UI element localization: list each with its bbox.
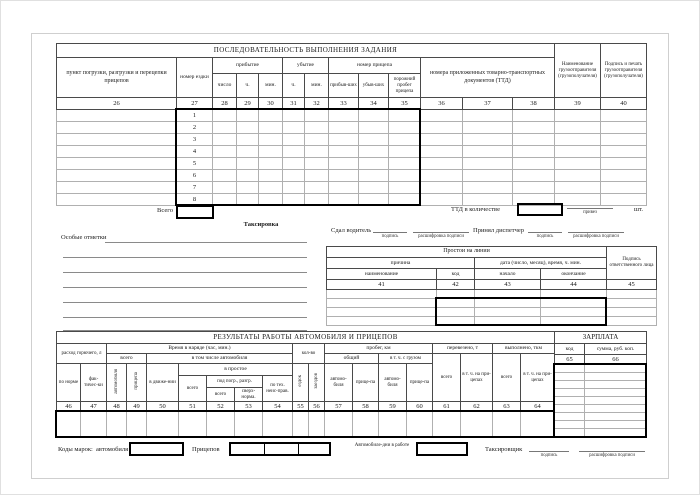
entry-cell (421, 182, 463, 194)
entry-cell (359, 110, 389, 122)
entry-cell (283, 134, 305, 146)
entry-cell (305, 110, 329, 122)
column-number: 50 (147, 402, 179, 412)
entry-cell (329, 158, 359, 170)
entry-cell (555, 405, 585, 413)
entry-cell (213, 182, 237, 194)
entry-cell (327, 317, 437, 326)
entry-cell (421, 146, 463, 158)
entry-cell (379, 412, 407, 438)
downtime-rows-body (327, 290, 657, 326)
entry-cell (213, 146, 237, 158)
entry-cell (585, 381, 647, 389)
entry-cell (389, 122, 421, 134)
entry-cell (555, 170, 601, 182)
column-number: 37 (463, 98, 513, 110)
entry-cell (305, 122, 329, 134)
trailers-label: Прицепов (192, 446, 220, 453)
column-number: 44 (541, 280, 607, 290)
entry-row (555, 381, 647, 389)
entry-cell (463, 170, 513, 182)
rater-name-blank: расшифровка подписи (579, 444, 645, 458)
salary-title: ЗАРПЛАТА (555, 332, 647, 344)
column-number: 62 (461, 402, 493, 412)
entry-cell (389, 134, 421, 146)
column-number: 26 (57, 98, 177, 110)
entry-cell (305, 158, 329, 170)
entry-cell (329, 134, 359, 146)
column-numbers-row: 262728293031323334353637383940 (57, 98, 647, 110)
signature-caption: подпись (529, 453, 569, 458)
entry-cell (585, 373, 647, 381)
entry-cell (541, 308, 607, 317)
entry-cell (389, 170, 421, 182)
entry-cell (475, 299, 541, 308)
column-number: 60 (407, 402, 433, 412)
hdr-vehicle-vertical: автомобиля (107, 364, 127, 402)
column-number: 47 (81, 402, 107, 412)
entry-cell (213, 122, 237, 134)
entry-cell (389, 146, 421, 158)
hdr-carried-total: всего (433, 354, 461, 402)
entry-cell (259, 122, 283, 134)
entry-cell (213, 110, 237, 122)
notes-line (63, 302, 307, 303)
column-number: 61 (433, 402, 461, 412)
entry-cell (179, 412, 207, 438)
task-sequence-title: ПОСЛЕДОВАТЕЛЬНОСТЬ ВЫПОЛНЕНИЯ ЗАДАНИЯ (57, 44, 555, 58)
entry-cell (57, 134, 177, 146)
entry-cell (237, 134, 259, 146)
task-row: 3 (57, 134, 647, 146)
entry-cell (555, 110, 601, 122)
column-number: 34 (359, 98, 389, 110)
entry-cell (329, 146, 359, 158)
entry-cell (213, 170, 237, 182)
hdr-carried: перевезено, т (433, 344, 493, 354)
entry-cell (555, 158, 601, 170)
entry-cell (57, 146, 177, 158)
hdr-rides-vertical: ездок (293, 364, 309, 402)
entry-cell (475, 290, 541, 299)
hdr-loading-total: всего (207, 388, 235, 402)
hdr-time-total: всего (107, 354, 147, 364)
entry-row (327, 308, 657, 317)
entry-cell (329, 170, 359, 182)
entry-cell (463, 146, 513, 158)
entry-cell (541, 290, 607, 299)
hdr-done: выполнено, ткм (493, 344, 555, 354)
entry-cell (421, 158, 463, 170)
blank-line (579, 444, 645, 452)
entry-cell (293, 412, 309, 438)
column-number: 40 (601, 98, 647, 110)
blank-line (568, 225, 624, 233)
column-numbers-row: 4142434445 (327, 280, 657, 290)
entry-cell (147, 412, 179, 438)
column-number: 51 (179, 402, 207, 412)
entry-cell (555, 421, 585, 429)
entry-cell (57, 194, 177, 206)
column-number: 64 (521, 402, 555, 412)
entry-cell (329, 110, 359, 122)
entry-cell (585, 421, 647, 429)
signature-caption: подпись (373, 234, 407, 239)
entry-cell (237, 182, 259, 194)
entry-cell (353, 412, 379, 438)
entry-cell (259, 194, 283, 206)
entry-cell (389, 194, 421, 206)
entry-cell (359, 122, 389, 134)
entry-cell (237, 110, 259, 122)
hdr-visits-vertical: заездов (309, 364, 325, 402)
total-label: Всего (141, 207, 173, 214)
rides-vertical-text: ездок (298, 375, 303, 387)
visits-vertical-text: заездов (314, 373, 319, 389)
hdr-mileage-overall: общий (325, 354, 379, 364)
entry-cell (57, 158, 177, 170)
notes-line (63, 257, 307, 258)
entry-cell (57, 170, 177, 182)
entry-cell (305, 146, 329, 158)
entry-cell (259, 146, 283, 158)
column-number: 63 (493, 402, 521, 412)
entry-cell (237, 194, 259, 206)
task-sequence-table: ПОСЛЕДОВАТЕЛЬНОСТЬ ВЫПОЛНЕНИЯ ЗАДАНИЯ На… (56, 43, 647, 206)
column-number: 52 (207, 402, 235, 412)
column-number: 33 (329, 98, 359, 110)
entry-cell (585, 405, 647, 413)
driver-name-blank: расшифровка подписи (413, 225, 469, 239)
entry-cell (555, 413, 585, 421)
entry-cell (263, 412, 293, 438)
entry-cell (513, 182, 555, 194)
ride-number-cell: 1 (177, 110, 213, 122)
hdr-quantity: кол-во (293, 344, 325, 364)
entry-cell (585, 397, 647, 405)
column-number: 66 (585, 355, 647, 365)
entry-cell (421, 122, 463, 134)
hdr-under-loading: под погр., разгр. (207, 376, 263, 388)
hdr-fuel-fact: фак-тичес-ки (81, 364, 107, 402)
signature-decode-caption: расшифровка подписи (413, 234, 469, 239)
entry-cell (555, 146, 601, 158)
entry-cell (585, 389, 647, 397)
entry-cell (437, 308, 475, 317)
entry-cell (57, 412, 81, 438)
hdr-mileage: пробег, км (325, 344, 433, 354)
hdr-tech-fault: по тех. неис-прав. (263, 376, 293, 402)
title-row: РЕЗУЛЬТАТЫ РАБОТЫ АВТОМОБИЛЯ И ПРИЦЕПОВ (57, 332, 555, 344)
entry-cell (329, 122, 359, 134)
column-number: 56 (309, 402, 325, 412)
column-number: 49 (127, 402, 147, 412)
results-entry-body (57, 412, 555, 438)
entry-cell (407, 412, 433, 438)
task-row: 4 (57, 146, 647, 158)
entry-cell (493, 412, 521, 438)
hdr-idle-total: всего (179, 376, 207, 402)
entry-cell (327, 308, 437, 317)
entry-cell (359, 194, 389, 206)
entry-row (327, 290, 657, 299)
entry-cell (601, 134, 647, 146)
entry-cell (585, 365, 647, 373)
entry-cell (607, 317, 657, 326)
entry-row (57, 412, 555, 438)
entry-cell (57, 110, 177, 122)
brought-caption: привез (567, 210, 613, 215)
column-number: 30 (259, 98, 283, 110)
hdr-cargo-vehicle: автомо-биля (379, 364, 407, 402)
ride-number-cell: 5 (177, 158, 213, 170)
hdr-in-motion: в движе-нии (147, 364, 179, 402)
entry-cell (555, 122, 601, 134)
hdr-arrival-min: мин. (259, 74, 283, 98)
column-number: 32 (305, 98, 329, 110)
entry-cell (513, 170, 555, 182)
results-table: РЕЗУЛЬТАТЫ РАБОТЫ АВТОМОБИЛЯ И ПРИЦЕПОВ … (56, 331, 555, 438)
entry-cell (359, 170, 389, 182)
signature-decode-caption: расшифровка подписи (568, 234, 624, 239)
blank-line (373, 225, 407, 233)
entry-cell (541, 317, 607, 326)
entry-cell (389, 182, 421, 194)
entry-cell (555, 381, 585, 389)
entry-cell (513, 122, 555, 134)
entry-row (327, 317, 657, 326)
entry-cell (305, 194, 329, 206)
entry-cell (463, 122, 513, 134)
column-number: 42 (437, 280, 475, 290)
title-row: Простои на линии Подпись ответственного … (327, 247, 657, 258)
hdr-end: окончание (541, 269, 607, 280)
entry-cell (107, 412, 127, 438)
entry-cell (213, 194, 237, 206)
hdr-salary-code: код (555, 344, 585, 355)
hdr-mileage-trailer: прице-па (353, 364, 379, 402)
entry-cell (283, 170, 305, 182)
blank-line (528, 225, 562, 233)
salary-table: ЗАРПЛАТА код сумма, руб. коп. 65 66 (554, 331, 647, 437)
column-number: 41 (327, 280, 437, 290)
entry-cell (607, 299, 657, 308)
hdr-departure-min: мин. (305, 74, 329, 98)
column-number: 59 (379, 402, 407, 412)
entry-row (555, 421, 647, 429)
downtime-title: Простои на линии (327, 247, 607, 258)
column-number: 36 (421, 98, 463, 110)
waybill-back-page: ПОСЛЕДОВАТЕЛЬНОСТЬ ВЫПОЛНЕНИЯ ЗАДАНИЯ На… (0, 0, 700, 495)
taksirovka-label: Таксировка (226, 221, 296, 228)
task-row: 7 (57, 182, 647, 194)
rater-signature-blank: подпись (529, 444, 569, 458)
entry-cell (513, 194, 555, 206)
entry-cell (601, 158, 647, 170)
entry-cell (329, 182, 359, 194)
hdr-arrival-hour: ч. (237, 74, 259, 98)
entry-cell (359, 146, 389, 158)
column-number: 53 (235, 402, 263, 412)
entry-cell (329, 194, 359, 206)
entry-cell (237, 170, 259, 182)
entry-cell (555, 397, 585, 405)
entry-cell (555, 182, 601, 194)
hdr-cargo-trailer: прице-па (407, 364, 433, 402)
notes-line (63, 287, 307, 288)
entry-cell (463, 134, 513, 146)
rater-label: Таксировщик (485, 446, 522, 453)
entry-cell (437, 290, 475, 299)
entry-cell (325, 412, 353, 438)
entry-cell (463, 182, 513, 194)
column-number: 27 (177, 98, 213, 110)
codes-text: Коды марок: (58, 446, 93, 453)
entry-cell (283, 146, 305, 158)
column-number: 35 (389, 98, 421, 110)
column-number: 48 (107, 402, 127, 412)
entry-cell (555, 365, 585, 373)
entry-cell (127, 412, 147, 438)
entry-cell (305, 182, 329, 194)
entry-cell (463, 110, 513, 122)
notes-line (105, 242, 307, 243)
ride-number-cell: 3 (177, 134, 213, 146)
entry-cell (601, 110, 647, 122)
column-number: 45 (607, 280, 657, 290)
blank-line (567, 201, 613, 209)
entry-cell (237, 158, 259, 170)
hdr-date-time: дата (число, месяц), время, ч. мин. (475, 258, 607, 269)
entry-cell (555, 373, 585, 381)
entry-cell (475, 308, 541, 317)
task-rows-body: 12345678 (57, 110, 647, 206)
column-number: 38 (513, 98, 555, 110)
entry-cell (389, 110, 421, 122)
entry-row (327, 299, 657, 308)
entry-cell (437, 317, 475, 326)
entry-cell (283, 182, 305, 194)
entry-cell (309, 412, 325, 438)
hdr-trailer-arrived: прибыв-ших (329, 74, 359, 98)
entry-cell (521, 412, 555, 438)
trailer-vertical-text: прицепа (134, 372, 139, 390)
task-row: 6 (57, 170, 647, 182)
pcs-label: шт. (634, 206, 643, 213)
entry-cell (463, 194, 513, 206)
entry-cell (601, 122, 647, 134)
hdr-departure: убытие (283, 58, 329, 74)
entry-row (555, 373, 647, 381)
hdr-start: начало (475, 269, 541, 280)
task-row: 1 (57, 110, 647, 122)
hdr-mileage-vehicle: автомо-биля (325, 364, 353, 402)
entry-row (555, 429, 647, 437)
entry-row (555, 397, 647, 405)
entry-cell (421, 194, 463, 206)
entry-cell (327, 290, 437, 299)
entry-cell (259, 170, 283, 182)
title-row: ПОСЛЕДОВАТЕЛЬНОСТЬ ВЫПОЛНЕНИЯ ЗАДАНИЯ На… (57, 44, 647, 58)
signature-decode-caption: расшифровка подписи (579, 453, 645, 458)
hdr-salary-sum: сумма, руб. коп. (585, 344, 647, 355)
entry-cell (207, 412, 235, 438)
entry-cell (305, 134, 329, 146)
entry-cell (305, 170, 329, 182)
dispatcher-signature-blank: подпись (528, 225, 562, 239)
title-row: ЗАРПЛАТА (555, 332, 647, 344)
hdr-trailer-number: номер прицепа (329, 58, 421, 74)
entry-cell (327, 299, 437, 308)
hdr-done-on-trailers: в т. ч. на при-цепах (521, 354, 555, 402)
entry-cell (259, 134, 283, 146)
entry-cell (237, 122, 259, 134)
entry-cell (359, 134, 389, 146)
entry-cell (213, 134, 237, 146)
blank-line (529, 444, 569, 452)
entry-cell (359, 182, 389, 194)
entry-cell (513, 158, 555, 170)
entry-row (555, 405, 647, 413)
hdr-departure-hour: ч. (283, 74, 305, 98)
entry-cell (57, 122, 177, 134)
entry-cell (555, 429, 585, 437)
ride-number-cell: 8 (177, 194, 213, 206)
hdr-arrival: прибытие (213, 58, 283, 74)
entry-cell (213, 158, 237, 170)
entry-cell (585, 413, 647, 421)
sub-header-row: код сумма, руб. коп. (555, 344, 647, 355)
entry-cell (359, 158, 389, 170)
entry-cell (555, 389, 585, 397)
entry-cell (421, 134, 463, 146)
header-row-1: расход горючего, л Время в наряде (час, … (57, 344, 555, 354)
column-number: 31 (283, 98, 305, 110)
entry-cell (541, 299, 607, 308)
salary-rows-body (555, 365, 647, 437)
ttd-count-label: ТТД в количестве (451, 206, 500, 213)
entry-cell (437, 299, 475, 308)
hdr-responsible-signature: Подпись ответственного лица (607, 247, 657, 280)
entry-row (555, 365, 647, 373)
hdr-time-on-duty: Время в наряде (час, мин.) (107, 344, 293, 354)
entry-cell (513, 146, 555, 158)
ride-number-cell: 6 (177, 170, 213, 182)
hdr-arrival-day: число (213, 74, 237, 98)
entry-cell (433, 412, 461, 438)
entry-cell (513, 134, 555, 146)
task-row: 5 (57, 158, 647, 170)
task-row: 8 (57, 194, 647, 206)
notes-line (63, 272, 307, 273)
hdr-fuel: расход горючего, л (57, 344, 107, 364)
hdr-carried-on-trailers: в т. ч. на при-цепах (461, 354, 493, 402)
signature-caption: подпись (528, 234, 562, 239)
hdr-trailer-vertical: прицепа (127, 364, 147, 402)
entry-row (555, 413, 647, 421)
entry-cell (601, 182, 647, 194)
column-number: 55 (293, 402, 309, 412)
entry-cell (601, 170, 647, 182)
entry-cell (81, 412, 107, 438)
hdr-reason-name: наименование (327, 269, 437, 280)
column-number: 58 (353, 402, 379, 412)
column-number: 46 (57, 402, 81, 412)
entry-cell (259, 110, 283, 122)
entry-cell (235, 412, 263, 438)
task-row: 2 (57, 122, 647, 134)
downtime-table: Простои на линии Подпись ответственного … (326, 246, 657, 326)
